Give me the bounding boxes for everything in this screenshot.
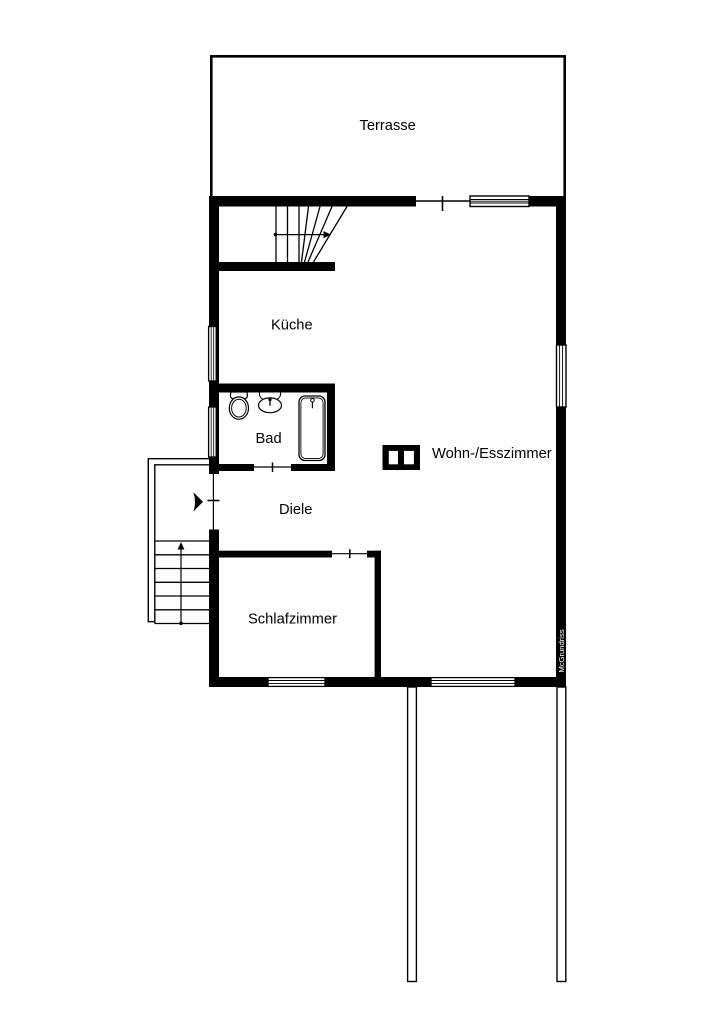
svg-text:Diele: Diele [279,502,312,518]
svg-text:Wohn-/Esszimmer: Wohn-/Esszimmer [432,446,552,462]
svg-text:Schlafzimmer: Schlafzimmer [248,612,337,628]
svg-text:McGrundriss: McGrundriss [557,629,566,672]
svg-text:Terrasse: Terrasse [360,118,416,134]
svg-text:Küche: Küche [271,318,313,334]
svg-text:Bad: Bad [256,431,282,447]
